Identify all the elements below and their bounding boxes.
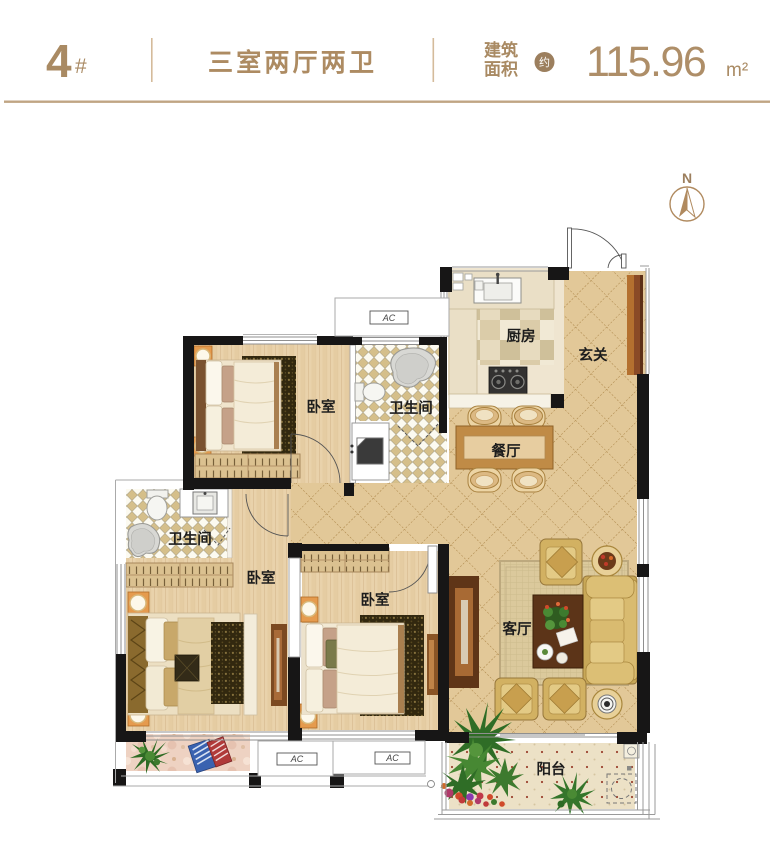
svg-text:面积: 面积 xyxy=(484,60,518,79)
svg-text:卧室: 卧室 xyxy=(307,398,336,416)
svg-text:餐厅: 餐厅 xyxy=(492,442,521,460)
svg-text:厨房: 厨房 xyxy=(507,327,536,345)
svg-text:玄关: 玄关 xyxy=(579,346,608,364)
svg-text:N: N xyxy=(682,170,692,186)
svg-text:AC: AC xyxy=(382,313,396,323)
svg-text:#: # xyxy=(75,55,87,78)
svg-text:约: 约 xyxy=(539,56,550,69)
svg-text:建筑: 建筑 xyxy=(484,40,518,60)
svg-text:三室两厅两卫: 三室两厅两卫 xyxy=(208,48,377,77)
svg-text:卧室: 卧室 xyxy=(247,569,276,587)
svg-text:115.96: 115.96 xyxy=(586,38,706,86)
svg-text:4: 4 xyxy=(46,35,72,87)
svg-text:AC: AC xyxy=(385,753,399,763)
svg-text:卫生间: 卫生间 xyxy=(168,530,212,548)
svg-text:阳台: 阳台 xyxy=(537,760,566,778)
svg-text:m²: m² xyxy=(726,60,748,81)
svg-text:卫生间: 卫生间 xyxy=(389,399,433,417)
svg-text:AC: AC xyxy=(290,754,304,764)
svg-text:卧室: 卧室 xyxy=(361,591,390,609)
svg-text:客厅: 客厅 xyxy=(502,620,532,638)
